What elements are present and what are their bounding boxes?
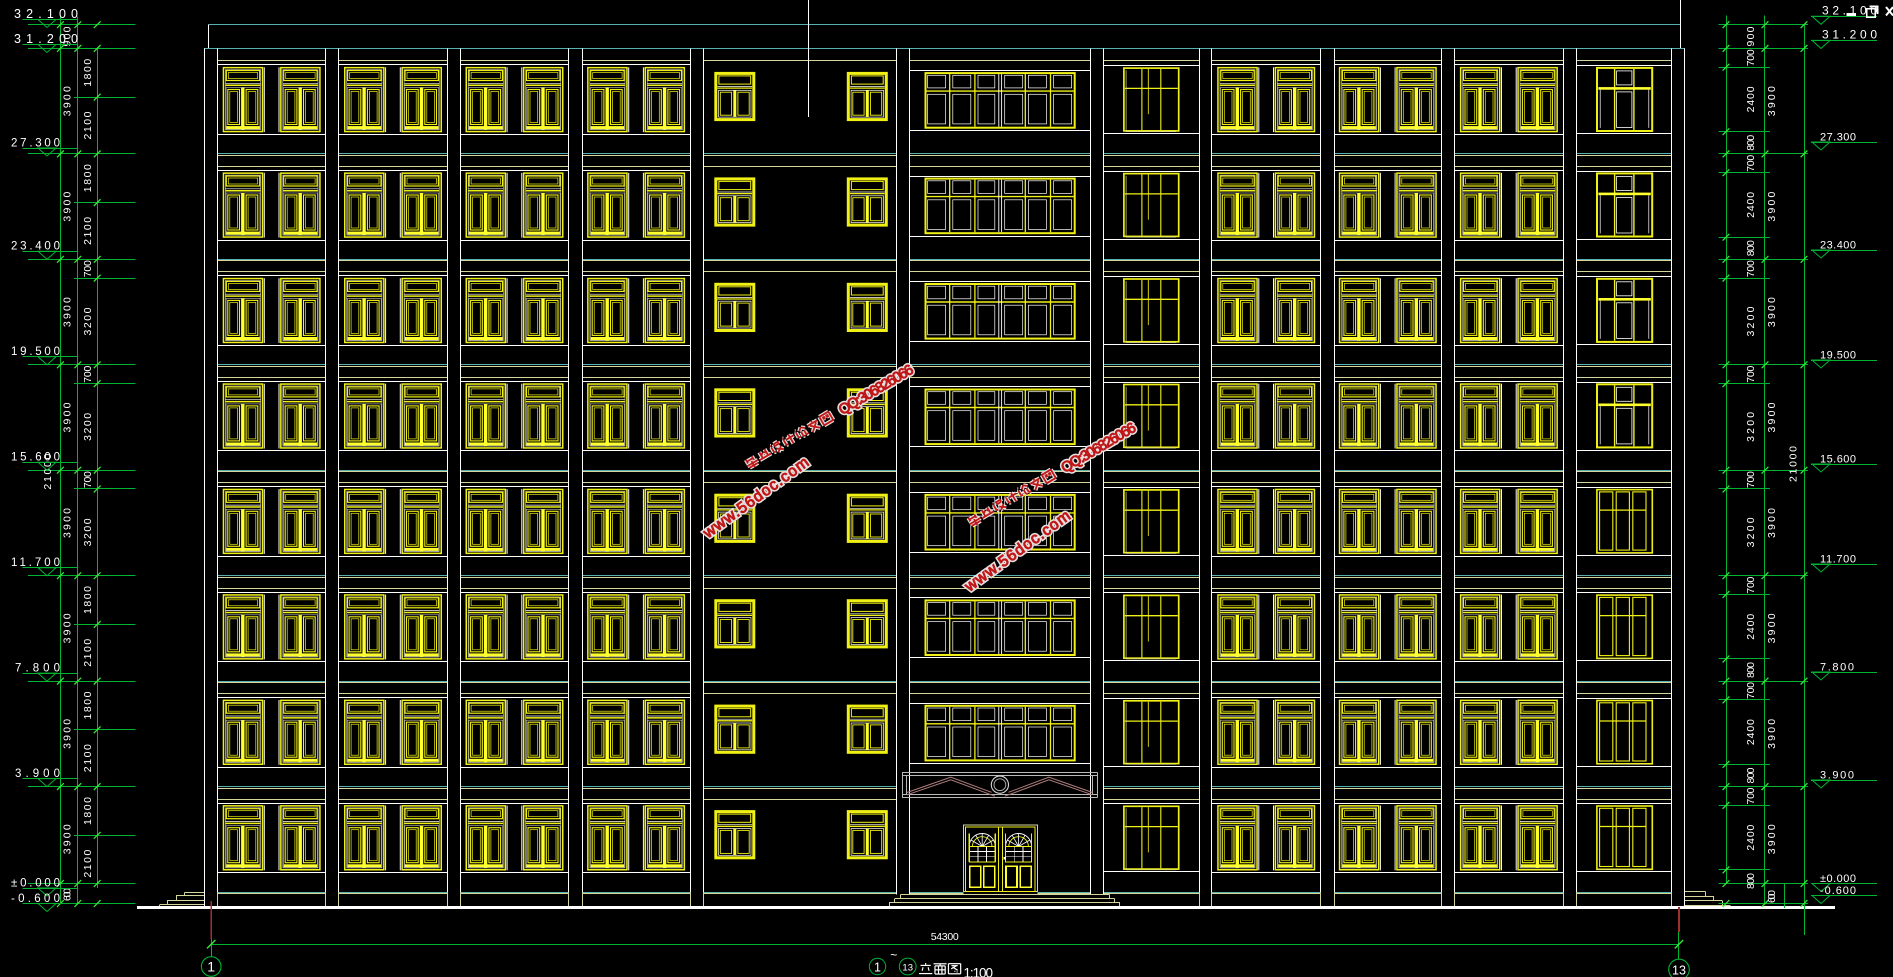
svg-text:2400: 2400: [1745, 86, 1757, 112]
svg-text:13: 13: [1672, 964, 1686, 977]
svg-text:3200: 3200: [82, 413, 94, 441]
svg-text:21000: 21000: [1788, 446, 1800, 482]
svg-text:600: 600: [62, 888, 74, 901]
svg-text:700: 700: [1745, 682, 1757, 699]
svg-text:54300: 54300: [931, 931, 959, 943]
svg-text:800: 800: [1745, 873, 1757, 889]
svg-text:700: 700: [1745, 260, 1757, 277]
svg-text:800: 800: [1745, 767, 1757, 783]
svg-text:1: 1: [207, 959, 215, 975]
svg-text:2400: 2400: [1745, 719, 1757, 745]
svg-text:700: 700: [82, 260, 94, 277]
svg-text:700: 700: [1745, 155, 1757, 172]
svg-text:1800: 1800: [82, 164, 94, 192]
svg-text:1800: 1800: [82, 797, 94, 825]
svg-text:700: 700: [82, 471, 94, 488]
svg-text:~: ~: [890, 948, 897, 962]
svg-text:2100: 2100: [82, 849, 94, 877]
svg-text:900: 900: [1745, 26, 1757, 46]
svg-text:2400: 2400: [1745, 192, 1757, 218]
svg-text:700: 700: [82, 366, 94, 383]
svg-text:700: 700: [1745, 366, 1757, 383]
svg-text:700: 700: [1745, 49, 1757, 66]
svg-text:700: 700: [1745, 576, 1757, 593]
svg-text:2100: 2100: [82, 111, 94, 139]
svg-text:2400: 2400: [1745, 614, 1757, 640]
svg-text:800: 800: [1745, 240, 1757, 256]
svg-text:1800: 1800: [82, 59, 94, 87]
svg-text:2100: 2100: [82, 217, 94, 245]
svg-text:600: 600: [1766, 890, 1778, 903]
svg-text:800: 800: [1745, 662, 1757, 678]
svg-text:2100: 2100: [82, 639, 94, 667]
svg-text:3200: 3200: [82, 518, 94, 546]
svg-text:1:100: 1:100: [964, 966, 994, 977]
svg-text:1800: 1800: [82, 691, 94, 719]
svg-text:700: 700: [1745, 787, 1757, 804]
svg-text:800: 800: [1745, 135, 1757, 151]
svg-text:3200: 3200: [82, 307, 94, 335]
svg-text:700: 700: [1745, 471, 1757, 488]
svg-text:2100: 2100: [82, 744, 94, 772]
svg-text:13: 13: [902, 963, 913, 974]
svg-text:2400: 2400: [1745, 824, 1757, 850]
svg-text:1: 1: [874, 960, 881, 974]
svg-text:1800: 1800: [82, 586, 94, 614]
